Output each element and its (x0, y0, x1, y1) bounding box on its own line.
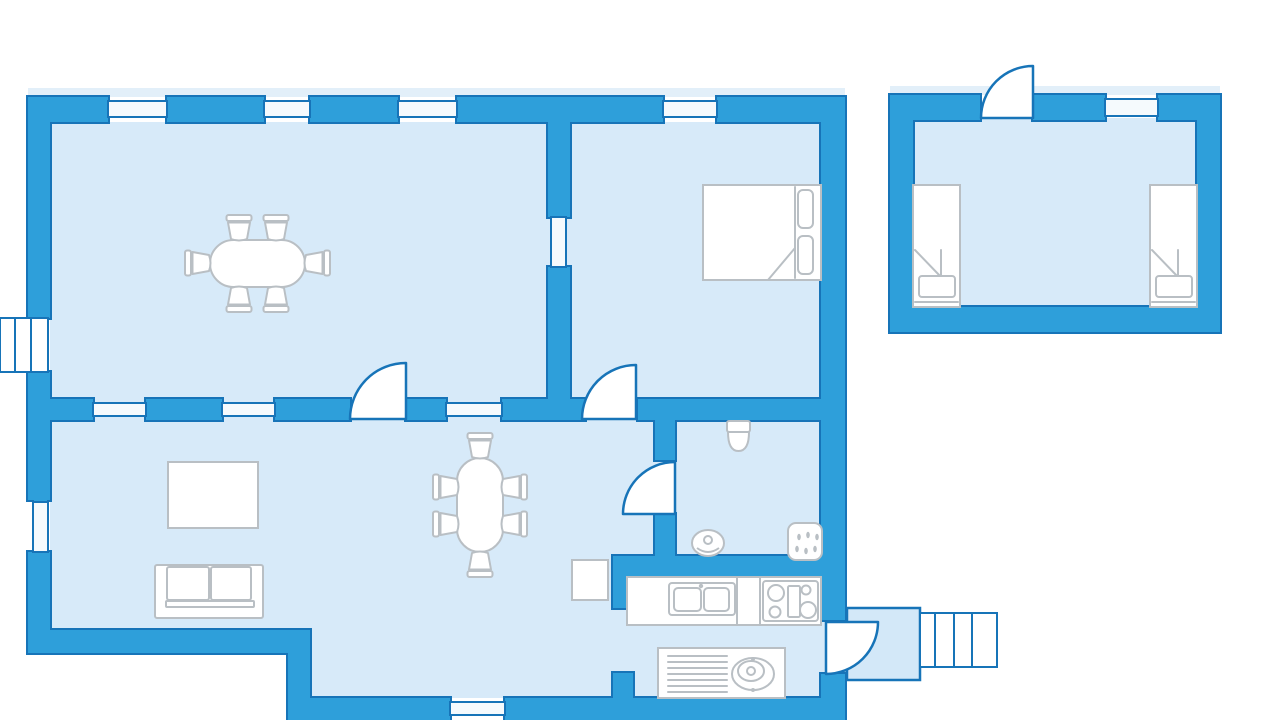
bay-window (0, 318, 48, 372)
dining-chair-4 (264, 287, 289, 313)
window-pane (446, 403, 502, 416)
dining-chair-5 (185, 251, 211, 276)
living-chair-6 (502, 512, 528, 537)
window-top-1 (104, 101, 171, 117)
toilet-tank (727, 421, 750, 432)
annex-door (981, 66, 1033, 118)
chair-seat (441, 476, 459, 498)
window-bottom (446, 702, 509, 715)
window-pane (450, 702, 505, 715)
mid-wall-b (146, 399, 222, 420)
chair-seat (228, 287, 250, 305)
window-top-2 (260, 101, 314, 117)
toilet (727, 421, 750, 451)
annex-top-wall-b (1033, 95, 1105, 120)
chair-back (468, 433, 493, 439)
bottom-wall-lower-b (505, 698, 845, 720)
chair-back (264, 306, 289, 312)
double-bed (703, 185, 821, 280)
stove-burner (768, 585, 784, 601)
window-left (33, 498, 48, 556)
stove-burner (802, 586, 811, 595)
chair-seat (469, 441, 491, 459)
basin-drain (704, 536, 712, 544)
living-chair-2 (468, 552, 493, 578)
shower-drop (806, 532, 810, 538)
sink-basin (674, 588, 701, 611)
chair-back (185, 251, 191, 276)
window-mid-3 (442, 403, 506, 416)
shower-tray (788, 523, 822, 560)
bottom-wall-upper (28, 630, 310, 653)
chair-seat (228, 223, 250, 241)
kitchen-drainer-sink (658, 648, 785, 698)
window-pane (108, 101, 167, 117)
chair-seat (502, 513, 520, 535)
drainer-drain (747, 667, 755, 675)
sofa-cushion (211, 567, 251, 600)
washbasin (692, 530, 724, 556)
window-annex (1101, 99, 1162, 116)
stove-burner (800, 602, 816, 618)
chair-seat (193, 252, 211, 274)
window-mid-1 (89, 403, 150, 416)
annex-bottom-wall (890, 307, 1220, 332)
window-pane (264, 101, 310, 117)
floor-plan-svg (0, 0, 1280, 720)
bed-pillow (798, 236, 813, 274)
living-chair-5 (502, 475, 528, 500)
sink-faucet (699, 584, 703, 588)
entrance-steps (920, 613, 997, 667)
bed-pillow (1156, 276, 1192, 297)
chair-back (227, 306, 252, 312)
window-mid-2 (218, 403, 279, 416)
shower-drop (815, 534, 819, 540)
chair-seat (305, 252, 323, 274)
living-table (457, 458, 503, 552)
window-divider (551, 213, 566, 271)
dining-chair-3 (227, 287, 252, 313)
left-wall-b (28, 372, 50, 500)
window-pane (551, 217, 566, 267)
sofa-cushion (167, 567, 209, 600)
sink-basin (704, 588, 729, 611)
window-pane (1105, 99, 1158, 116)
shower (788, 523, 822, 560)
single-bed-right (1150, 185, 1197, 307)
living-chair-3 (433, 475, 459, 500)
dining-table (210, 240, 305, 287)
window-pane (663, 101, 717, 117)
side-table (572, 560, 608, 600)
toilet-bowl (728, 432, 749, 451)
room-divider-vertical-a (548, 122, 570, 217)
drainer-tap (751, 657, 755, 661)
chair-seat (265, 223, 287, 241)
bathroom-wall-b (655, 514, 675, 558)
annex-left-wall (890, 95, 913, 332)
dining-chair-1 (227, 215, 252, 241)
mid-wall-f (638, 399, 845, 420)
bed-pillow (919, 276, 955, 297)
shower-drop (804, 548, 808, 554)
top-wall-c (310, 97, 398, 122)
window-top-4 (659, 101, 721, 117)
right-wall-a (821, 97, 845, 620)
top-wall-d (457, 97, 663, 122)
chair-back (433, 512, 439, 537)
chair-seat (469, 552, 491, 570)
room-divider-vertical-b (548, 267, 570, 399)
chair-back (468, 571, 493, 577)
bottom-wall-lower-a (288, 698, 450, 720)
mid-wall-c (275, 399, 350, 420)
bathroom-wall-a (655, 420, 675, 460)
shower-drop (813, 546, 817, 552)
window-pane (398, 101, 457, 117)
drainer-tap (751, 688, 755, 692)
right-wall-b (821, 674, 845, 720)
coffee-table (168, 462, 258, 528)
chair-seat (502, 476, 520, 498)
left-wall-c (28, 552, 50, 632)
chair-back (264, 215, 289, 221)
annex-right-wall (1197, 95, 1220, 332)
chair-back (227, 215, 252, 221)
single-bed-left (913, 185, 960, 307)
mid-wall-d (406, 399, 446, 420)
kitchen-counter (627, 577, 821, 625)
steps-outline (920, 613, 997, 667)
dining-chair-6 (305, 251, 331, 276)
sofa (155, 565, 263, 618)
chair-back (521, 475, 527, 500)
left-wall-a (28, 97, 50, 318)
window-pane (222, 403, 275, 416)
chair-back (324, 251, 330, 276)
shower-drop (797, 534, 801, 540)
mid-wall-e (502, 399, 585, 420)
living-chair-1 (468, 433, 493, 459)
chair-back (433, 475, 439, 500)
chair-back (521, 512, 527, 537)
chair-seat (265, 287, 287, 305)
kitchen-stub-wall (613, 673, 633, 698)
floor-plan-page (0, 0, 1280, 720)
dining-chair-2 (264, 215, 289, 241)
sofa-seat-edge (166, 601, 254, 607)
bay-window-frame (0, 318, 48, 372)
living-chair-4 (433, 512, 459, 537)
mid-wall-a (50, 399, 93, 420)
window-top-3 (394, 101, 461, 117)
top-wall-b (167, 97, 264, 122)
window-pane (93, 403, 146, 416)
stove-grid (788, 586, 800, 617)
bed-pillow (798, 190, 813, 228)
stove-burner (770, 607, 781, 618)
shower-drop (795, 546, 799, 552)
window-pane (33, 502, 48, 552)
chair-seat (441, 513, 459, 535)
